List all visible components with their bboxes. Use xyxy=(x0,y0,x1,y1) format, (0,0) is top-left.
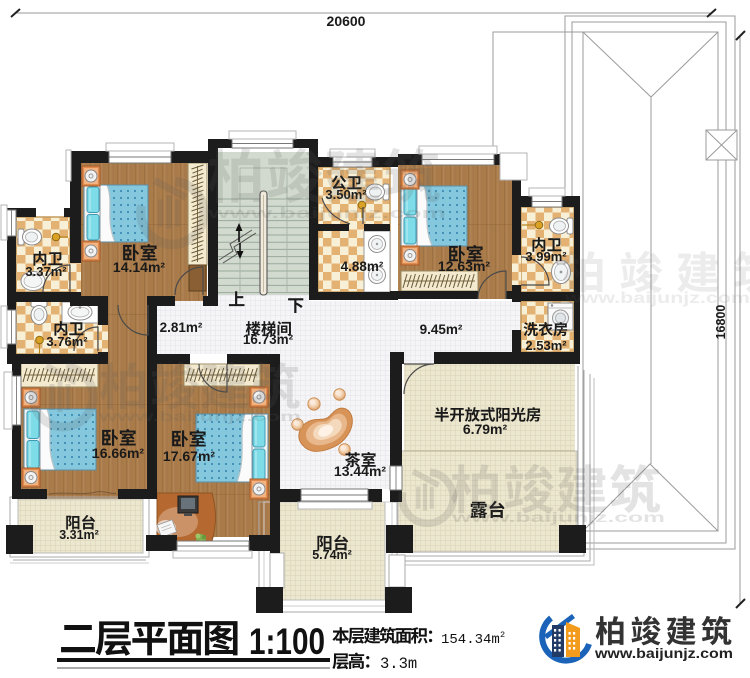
svg-text:16.66m²: 16.66m² xyxy=(92,445,144,461)
svg-text:6.79m²: 6.79m² xyxy=(463,421,508,437)
svg-text:www.baijunjz.com: www.baijunjz.com xyxy=(450,509,665,525)
svg-text:3.76m²: 3.76m² xyxy=(46,334,88,349)
svg-text:2: 2 xyxy=(500,630,505,640)
svg-text:1:100: 1:100 xyxy=(249,620,325,662)
svg-text:www.baijunjz.com: www.baijunjz.com xyxy=(97,408,301,424)
svg-text:16.73m²: 16.73m² xyxy=(243,332,294,347)
svg-text:www.baijunjz.com: www.baijunjz.com xyxy=(564,290,750,307)
svg-text:2.81m²: 2.81m² xyxy=(160,320,203,335)
svg-text:13.44m²: 13.44m² xyxy=(334,463,386,479)
svg-text:154.34m: 154.34m xyxy=(441,632,500,648)
svg-text:20600: 20600 xyxy=(327,13,366,29)
svg-text:3.37m²: 3.37m² xyxy=(25,264,67,279)
svg-text:16800: 16800 xyxy=(714,305,728,340)
svg-text:3.31m²: 3.31m² xyxy=(59,528,99,542)
svg-text:12.63m²: 12.63m² xyxy=(438,258,490,274)
svg-text:9.45m²: 9.45m² xyxy=(420,322,463,337)
svg-text:www.baijunjz.com: www.baijunjz.com xyxy=(206,205,446,222)
svg-text:4.88m²: 4.88m² xyxy=(341,259,384,274)
svg-text:5.74m²: 5.74m² xyxy=(312,548,352,562)
svg-text:14.14m²: 14.14m² xyxy=(113,259,165,275)
svg-text:3.3m: 3.3m xyxy=(380,655,417,673)
svg-text:www.baijunjz.com: www.baijunjz.com xyxy=(594,646,733,661)
svg-text:2.53m²: 2.53m² xyxy=(525,338,567,353)
svg-text:3.99m²: 3.99m² xyxy=(525,249,567,264)
svg-text:17.67m²: 17.67m² xyxy=(163,448,215,464)
